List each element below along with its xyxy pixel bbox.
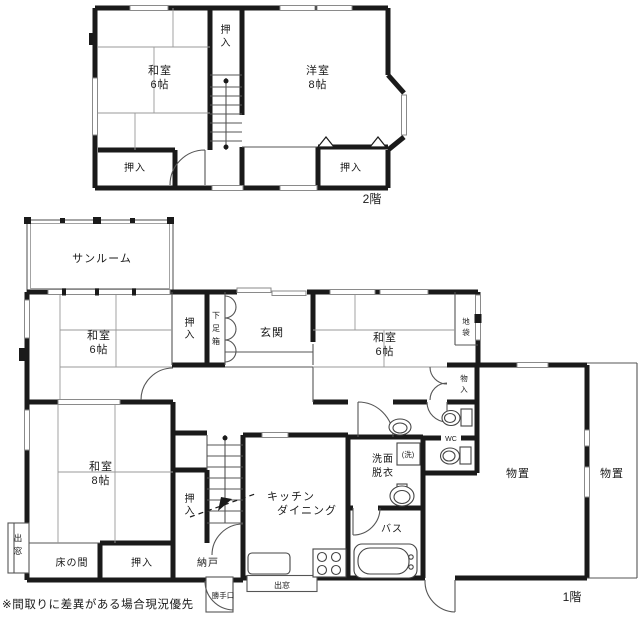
doors-monoire (430, 367, 447, 400)
label-washitsu8: 和室 (89, 459, 113, 473)
entrance-sliding-door (237, 288, 271, 293)
toilet-tank-1 (461, 409, 472, 426)
label-katteguchi: 勝手口 (212, 590, 235, 600)
label-genkan: 玄関 (260, 325, 284, 339)
label-sunroom: サンルーム (72, 252, 132, 265)
door-bath (353, 508, 380, 535)
label-monoire: 物入 (460, 373, 468, 394)
wall-stub-2f (89, 33, 95, 45)
label-oshiire-2f-right: 押入 (340, 161, 362, 174)
floorplan-canvas: 和室 6帖 洋室 8帖 押入 押入 押入 2階 サンルーム 和室 6帖 押入 下… (0, 0, 640, 617)
door-stairs-bottom (212, 524, 243, 555)
label-oshiire-south: 押入 (131, 556, 153, 569)
label-floor1: 1階 (563, 589, 582, 604)
wall-stub-1f (19, 348, 28, 361)
label-washitsu6-east-size: 6帖 (375, 345, 394, 358)
toilet-tank-2 (460, 447, 471, 464)
stairs-2f (210, 78, 242, 150)
label-senmen: 洗面 (372, 453, 394, 465)
stairs-1f (207, 435, 243, 523)
bath-tap (409, 555, 413, 559)
walls-2f (95, 8, 404, 188)
label-datsui: 脱衣 (372, 466, 394, 479)
label-demado-south: 出窓 (274, 580, 290, 590)
floor-plan-drawing: 和室 6帖 洋室 8帖 押入 押入 押入 2階 サンルーム 和室 6帖 押入 下… (0, 0, 640, 617)
label-nando: 納戸 (197, 556, 219, 569)
label-floor2: 2階 (363, 191, 382, 206)
label-washitsu6-west: 和室 (87, 328, 111, 342)
label-bath: バス (381, 523, 403, 535)
disclaimer-note: ※間取りに差異がある場合現況優先 (2, 597, 194, 611)
label-laundry: (洗) (402, 449, 415, 459)
label-oshiire-2f-left: 押入 (124, 161, 146, 174)
door-corridor (358, 402, 393, 437)
door-storage-exterior (425, 580, 455, 612)
label-washitsu6-2f-size: 6帖 (150, 78, 169, 91)
label-monooki-east: 物置 (600, 466, 624, 480)
label-washitsu8-size: 8帖 (91, 474, 110, 487)
label-yoshitsu8: 洋室 (306, 63, 330, 77)
label-jibukuro: 地袋 (462, 316, 470, 337)
label-monooki: 物置 (506, 466, 530, 480)
label-yoshitsu8-size: 8帖 (308, 78, 327, 91)
label-washitsu6-2f: 和室 (148, 63, 172, 77)
label-kitchen: キッチン (267, 490, 315, 503)
label-kitchen-dining: ダイニング (277, 503, 337, 517)
kitchen-sink (248, 553, 290, 574)
door-washitsu6-west (141, 368, 173, 400)
label-tokonoma: 床の間 (56, 556, 89, 569)
label-washitsu6-east: 和室 (373, 330, 397, 344)
label-oshiire-entry: 押入 (185, 316, 196, 341)
label-oshiire-2f-top: 押入 (221, 23, 232, 49)
label-getabako: 下足箱 (212, 311, 220, 346)
label-oshiire-stair: 押入 (185, 492, 196, 517)
walls-1f (27, 292, 587, 580)
label-washitsu6-west-size: 6帖 (89, 343, 108, 356)
label-wc: WC (445, 436, 457, 443)
